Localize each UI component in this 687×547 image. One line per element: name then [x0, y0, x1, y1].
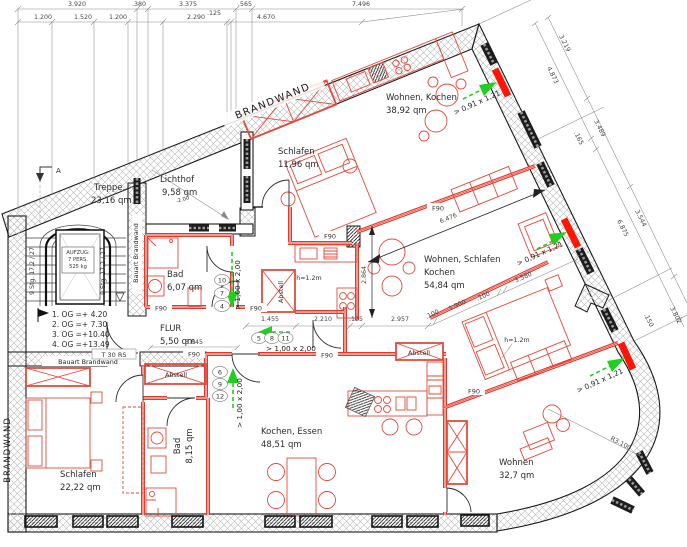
section-marker-label: A	[56, 167, 61, 175]
windows	[25, 44, 650, 527]
room-name-kochen-essen: Kochen, Essen	[261, 427, 322, 437]
dim-row: 2.210	[314, 316, 332, 323]
apartment-partition-walls	[143, 166, 618, 515]
dining-table	[287, 458, 316, 516]
dim-top2: 1.200	[34, 14, 52, 21]
dim-top: 3.920	[68, 1, 86, 8]
step-number: 4	[220, 303, 224, 311]
room-name-schlafen2: Schlafen	[60, 470, 97, 480]
room-area-schlafen2: 22,22 qm	[60, 483, 101, 493]
exterior-wall-right-curved	[472, 24, 660, 531]
dim-right-outer: 3.489	[592, 119, 606, 138]
room-area-lichthof: 9,58 qm	[162, 188, 197, 198]
dim-kitchen-depth: 2.864	[361, 266, 368, 284]
step-number: 10	[218, 277, 226, 285]
room-area-treppe: 23,16 qm	[91, 196, 132, 206]
elevator-weight: 525 kg	[69, 264, 87, 270]
floor-plan-svg: 3.920 .380 3.375 .565 7.496 1.200 1.520 …	[0, 0, 687, 547]
brandwand-left-label: BRANDWAND	[3, 417, 13, 483]
dim-right-outer: 3.219	[557, 34, 571, 53]
f90-label: F90	[321, 352, 333, 360]
step-number: 12	[216, 393, 224, 401]
exit-door-size-label: > 1,00 x 2,00	[235, 378, 244, 428]
exit-window-size-label: > 0,91 x 1,21	[575, 366, 624, 395]
room-name-lichthof: Lichthof	[160, 175, 195, 185]
step-number: 7	[220, 290, 224, 298]
level-triangle-icon	[116, 293, 124, 301]
dim-right-inner: 6.875	[615, 219, 629, 238]
dim-right-outer: 3.802	[668, 306, 682, 325]
room-name-wsk-2: Kochen	[424, 268, 455, 278]
room-area-flur: 5,50 qm	[160, 337, 195, 347]
movable-unit	[345, 387, 374, 416]
elevator-capacity: 7 PERS.	[68, 257, 88, 263]
dim-top: .380	[132, 1, 146, 8]
storage-label: Abstell	[277, 281, 285, 303]
dim-top2: 1.200	[109, 14, 127, 21]
door-arc	[262, 180, 289, 207]
bed-schlafen2	[26, 398, 90, 468]
room-area-bad1: 6,07 qm	[167, 283, 202, 293]
door-arc	[116, 375, 143, 402]
level-line: 4. OG =+13.49	[52, 340, 110, 349]
room-name-bad2: Bad	[173, 438, 183, 454]
parapet-label: h=1.2m	[296, 275, 321, 282]
fire-door-label: T 30 RS	[100, 351, 126, 359]
dim-living-diag: 6.476	[439, 212, 458, 225]
dim-top: 7.496	[352, 1, 370, 8]
stair-flight-label: 9 Stg. 17,2 / 27	[29, 247, 36, 295]
step-number: 5	[257, 335, 261, 343]
exit-door-size-label: > 1,00 x 2,00	[266, 344, 316, 353]
level-line: 1. OG =+ 4.20	[52, 310, 108, 319]
door-arc	[167, 398, 195, 426]
dim-top2: 4.670	[257, 14, 275, 21]
dim-row: .125	[349, 316, 363, 323]
f90-label: F90	[324, 233, 336, 241]
f90-label: F90	[250, 305, 262, 313]
level-marker-icon	[38, 309, 49, 317]
f90-label: F90	[155, 305, 167, 313]
exit-window-size-label: > 0,91 x 1,21	[515, 239, 564, 268]
door-arc	[447, 488, 471, 512]
dim-top: 3.375	[179, 1, 197, 8]
sofa-wohnen2	[511, 341, 572, 381]
elevator-label: AUFZUG:	[66, 250, 90, 256]
room-name-treppe: Treppe,	[93, 183, 125, 193]
room-name-wohnen2: Wohnen	[499, 458, 534, 468]
room-area-schlafen1: 11,96 qm	[278, 160, 319, 170]
f90-label: F90	[432, 205, 444, 213]
floor-plan-page: 3.920 .380 3.375 .565 7.496 1.200 1.520 …	[0, 0, 687, 547]
room-name-wohnen-kochen: Wohnen, Kochen	[386, 93, 457, 103]
step-number: 11	[281, 335, 289, 343]
dashed-planned-element	[123, 407, 143, 493]
exit-door-size-label: > 1,00 x 2,00	[233, 260, 242, 310]
dim-diag: .100	[476, 291, 492, 303]
step-number: 6	[218, 369, 222, 377]
f90-label: F90	[468, 388, 480, 396]
dim-right-inner: .150	[642, 313, 654, 329]
fire-door-arc	[107, 322, 138, 353]
section-arrow-icon	[36, 173, 44, 182]
wardrobe-column	[447, 421, 467, 484]
room-area-bad2: 8,15 qm	[185, 428, 195, 463]
step-number: 8	[270, 335, 274, 343]
storage-label: Abstell	[408, 349, 430, 357]
level-line: 3. OG =+10.40	[52, 330, 110, 339]
dim-diag: 3.580	[514, 271, 533, 285]
tv-board	[520, 438, 552, 460]
door-arc	[313, 320, 341, 348]
dim-radius: R3.100	[609, 435, 632, 451]
room-name-schlafen1: Schlafen	[278, 147, 315, 157]
dim-top2: .125	[207, 10, 221, 17]
stair-flight-label: 9 Stg. 17,2 / 27	[100, 247, 107, 295]
parapet-label: h=1.2m	[504, 337, 529, 344]
room-name-bad1: Bad	[167, 270, 183, 280]
room-area-wohnen-kochen: 38,92 qm	[386, 106, 427, 116]
dim-right-outer: 3.544	[633, 209, 647, 228]
room-name-wsk-1: Wohnen, Schlafen	[424, 255, 501, 265]
level-line: 2. OG =+ 7.30	[52, 320, 108, 329]
step-number: 9	[218, 381, 222, 389]
dim-top2: 2.290	[187, 14, 205, 21]
room-name-flur: FLUR	[160, 324, 181, 334]
dim-row: 2.957	[391, 316, 409, 323]
dim-row: 1.455	[261, 316, 279, 323]
bauart-brandwand-vertical-label: Bauart Brandwand	[132, 223, 140, 283]
firewall-left	[8, 216, 26, 532]
room-area-wsk: 54,84 qm	[424, 281, 465, 291]
dim-top2: 1.520	[74, 14, 92, 21]
f90-label: F90	[188, 351, 200, 359]
dim-right-inner: .165	[572, 131, 584, 147]
room-area-kochen-essen: 48,51 qm	[261, 440, 302, 450]
room-area-wohnen2: 32,7 qm	[499, 471, 534, 481]
door-arc	[207, 246, 233, 272]
storage-label: Abstell	[165, 371, 187, 379]
dim-top: .565	[238, 1, 252, 8]
